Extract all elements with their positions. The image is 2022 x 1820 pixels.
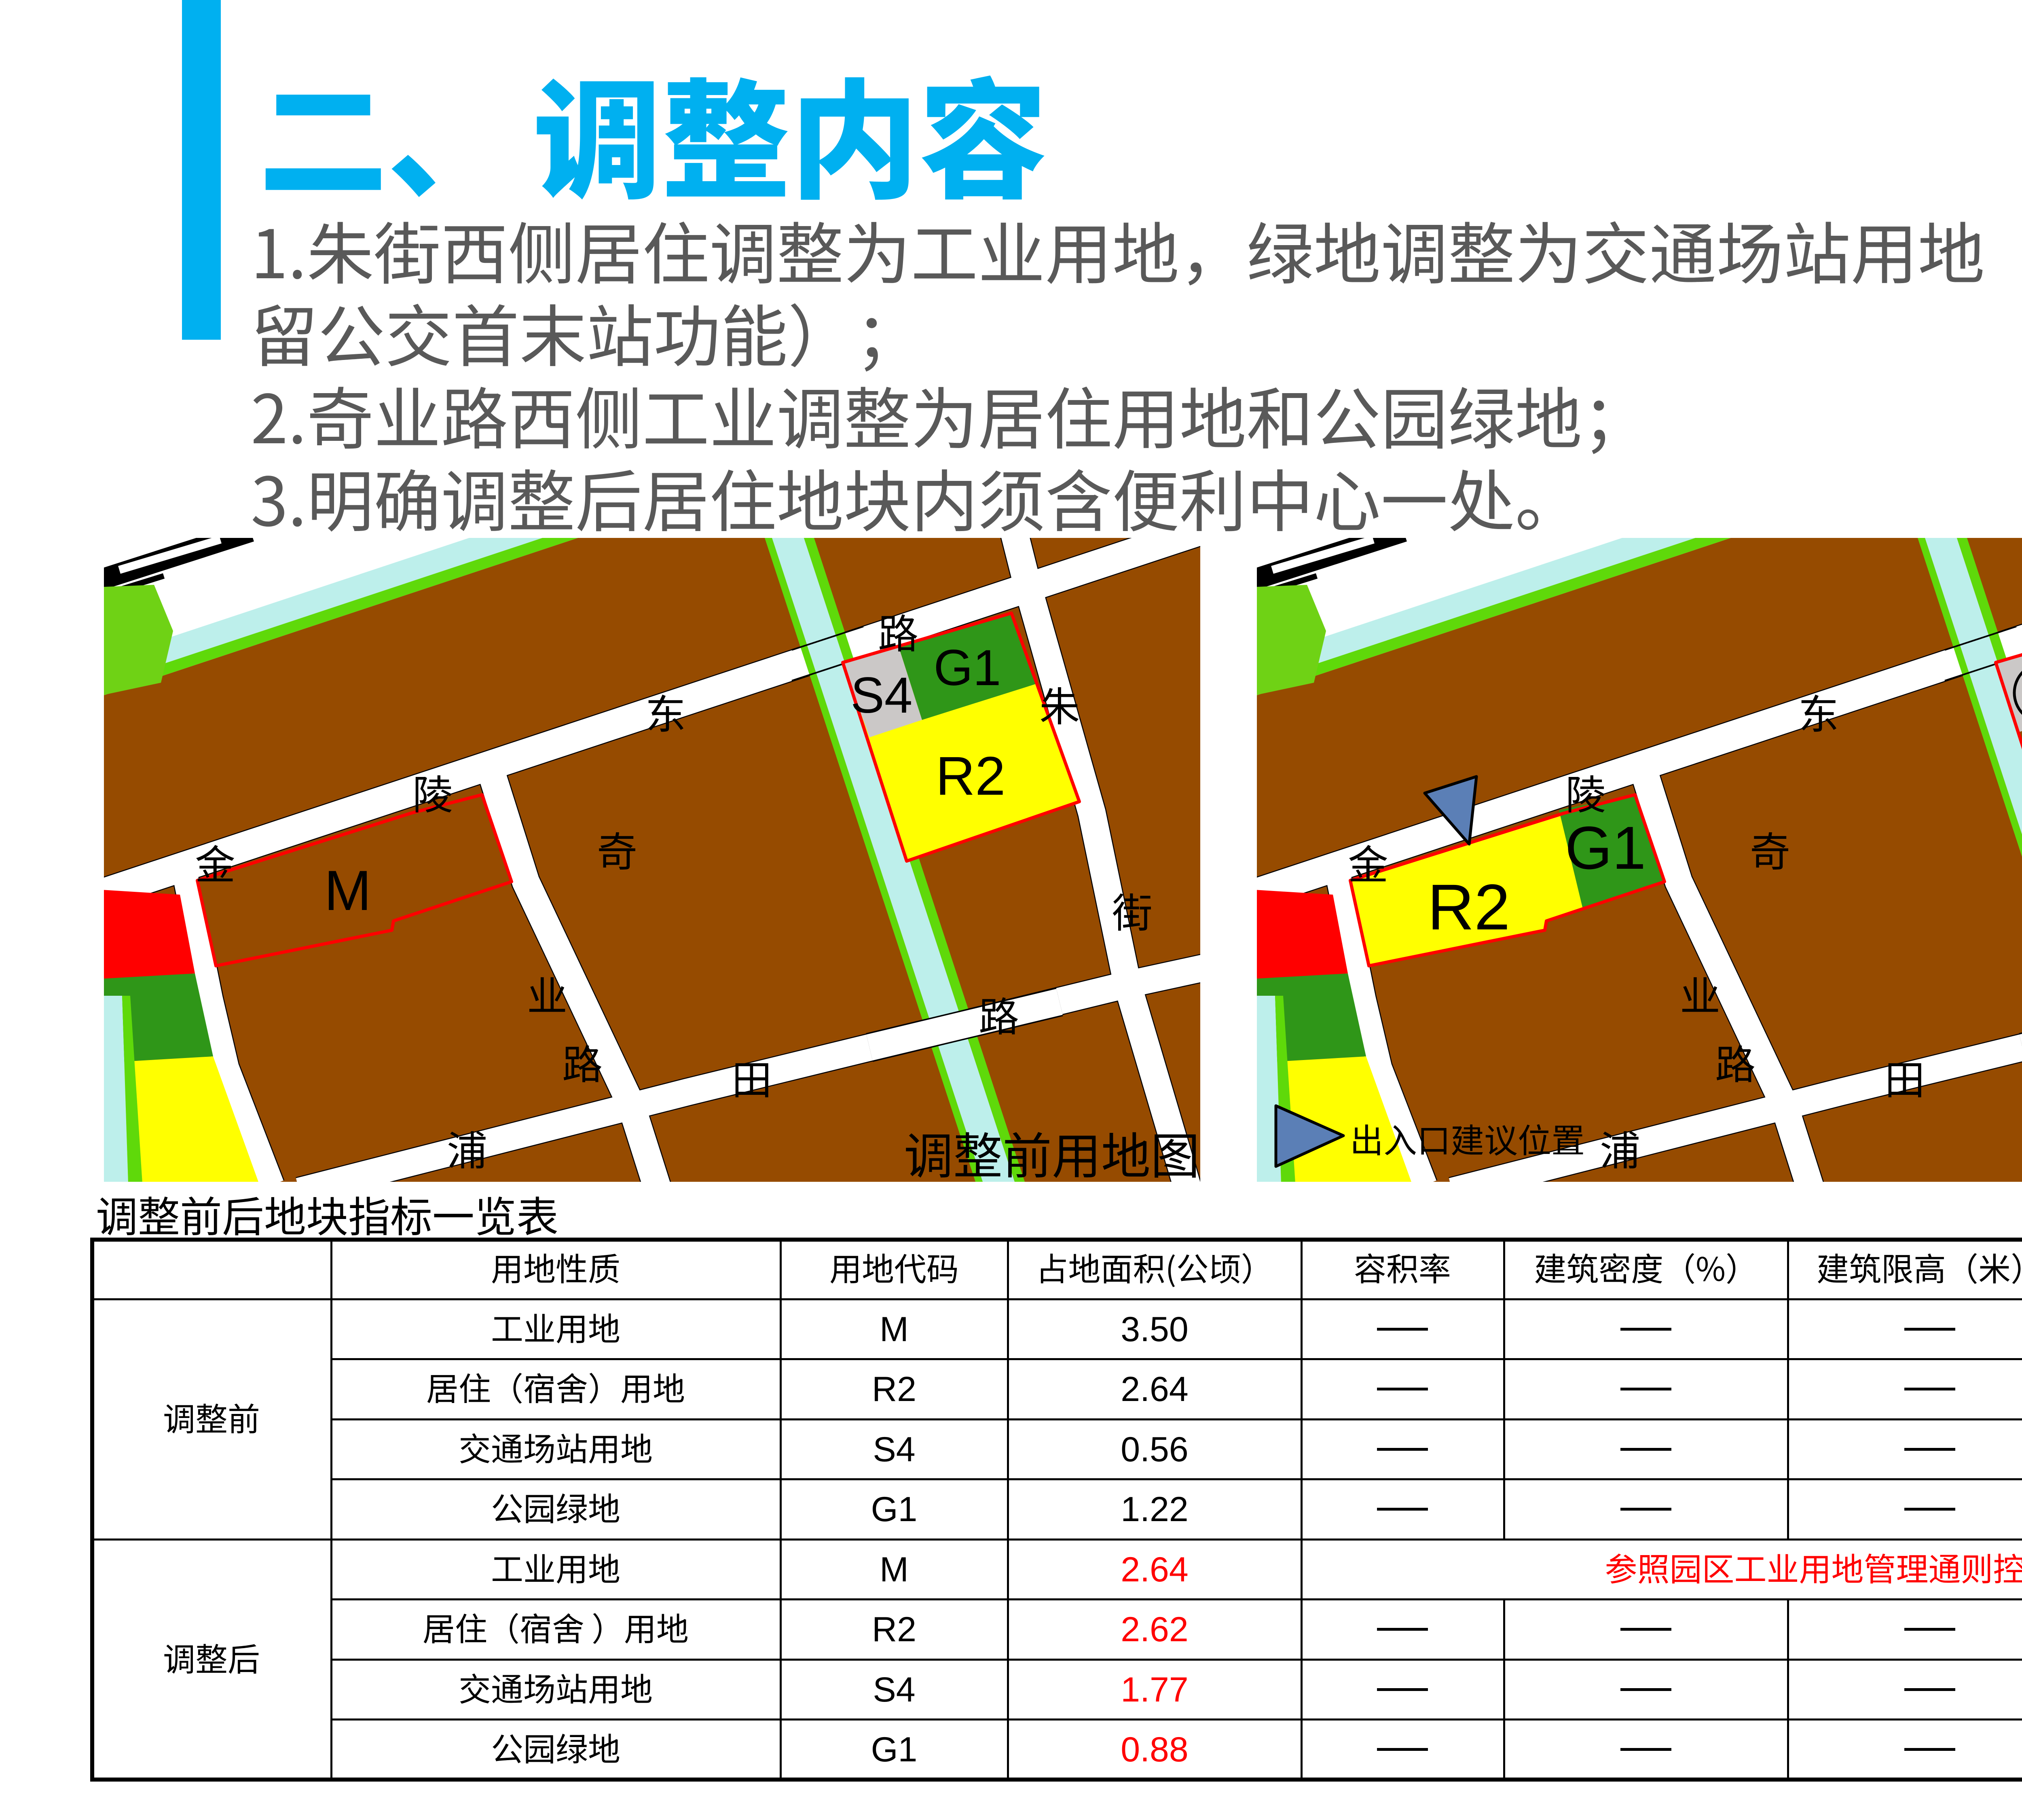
svg-text:G1: G1 bbox=[871, 1490, 918, 1529]
svg-text:M: M bbox=[880, 1310, 909, 1349]
svg-text:S4: S4 bbox=[873, 1430, 915, 1469]
svg-text:R2: R2 bbox=[1428, 871, 1510, 943]
svg-text:2.64: 2.64 bbox=[1121, 1550, 1188, 1589]
svg-text:G1: G1 bbox=[1565, 814, 1646, 882]
svg-text:1.22: 1.22 bbox=[1121, 1490, 1188, 1529]
svg-text:G1: G1 bbox=[934, 640, 1001, 696]
svg-text:R2: R2 bbox=[872, 1610, 916, 1649]
svg-text:0.88: 0.88 bbox=[1121, 1730, 1188, 1769]
svg-text:0.56: 0.56 bbox=[1121, 1430, 1188, 1469]
svg-text:1.77: 1.77 bbox=[1121, 1670, 1188, 1709]
svg-text:S4: S4 bbox=[873, 1670, 915, 1709]
svg-text:R2: R2 bbox=[936, 745, 1006, 806]
svg-text:3.50: 3.50 bbox=[1121, 1310, 1188, 1349]
svg-text:R2: R2 bbox=[872, 1370, 916, 1409]
svg-text:2.64: 2.64 bbox=[1121, 1370, 1188, 1409]
svg-text:M: M bbox=[880, 1550, 909, 1589]
svg-text:G1: G1 bbox=[871, 1730, 918, 1769]
svg-text:M: M bbox=[324, 859, 372, 922]
svg-text:S4: S4 bbox=[851, 667, 913, 724]
svg-text:2.62: 2.62 bbox=[1121, 1610, 1188, 1649]
